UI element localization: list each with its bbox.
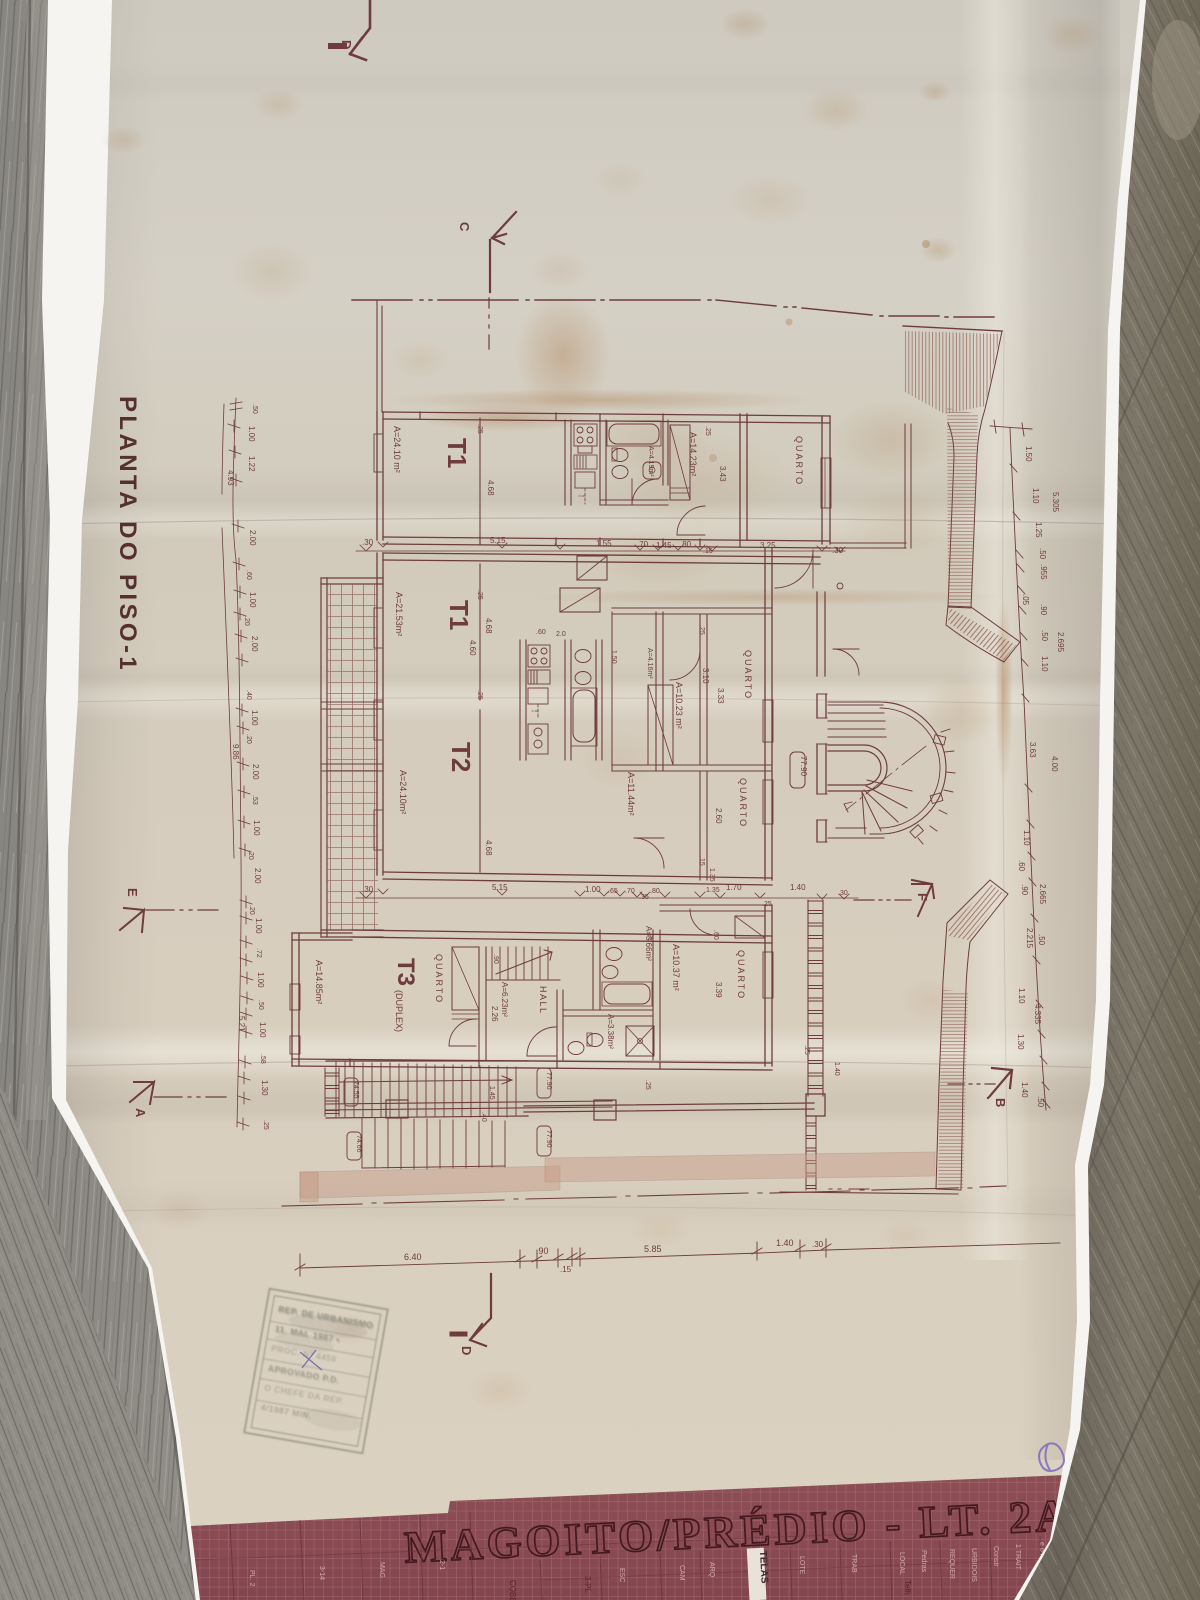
svg-text:.25: .25 bbox=[698, 625, 705, 635]
svg-text:1.40: 1.40 bbox=[833, 1062, 840, 1076]
svg-text:4.68: 4.68 bbox=[484, 618, 493, 634]
svg-text:.20: .20 bbox=[243, 616, 250, 626]
svg-text:QUARTO: QUARTO bbox=[736, 950, 746, 1000]
svg-text:2.0: 2.0 bbox=[556, 631, 566, 638]
svg-text:1.45: 1.45 bbox=[656, 541, 672, 550]
svg-text:ARQ: ARQ bbox=[708, 1562, 715, 1578]
svg-text:Pedras: Pedras bbox=[920, 1550, 927, 1573]
svg-text:74.55: 74.55 bbox=[352, 1081, 359, 1099]
svg-text:1.00: 1.00 bbox=[254, 918, 263, 934]
svg-text:2.215: 2.215 bbox=[1025, 928, 1034, 949]
svg-text:.15: .15 bbox=[560, 1265, 572, 1274]
svg-text:1.00: 1.00 bbox=[256, 972, 265, 988]
svg-text:1.00: 1.00 bbox=[252, 820, 261, 836]
svg-text:3.25: 3.25 bbox=[760, 541, 776, 550]
svg-text:1.00: 1.00 bbox=[247, 426, 256, 442]
svg-text:5.15: 5.15 bbox=[492, 883, 508, 892]
svg-text:.58: .58 bbox=[259, 1054, 266, 1064]
svg-text:TELAS: TELAS bbox=[757, 1550, 770, 1584]
svg-text:74.66: 74.66 bbox=[355, 1135, 362, 1153]
svg-text:4.00: 4.00 bbox=[1050, 756, 1059, 772]
svg-text:.20: .20 bbox=[245, 734, 252, 744]
svg-text:1.45: 1.45 bbox=[488, 1086, 495, 1100]
svg-text:A=10.23 m²: A=10.23 m² bbox=[674, 682, 684, 729]
svg-text:4.68: 4.68 bbox=[484, 840, 493, 856]
svg-text:F: F bbox=[915, 893, 930, 901]
svg-text:HALL: HALL bbox=[538, 986, 548, 1015]
svg-text:4.335: 4.335 bbox=[1033, 1004, 1042, 1025]
svg-text:1.10: 1.10 bbox=[1040, 656, 1049, 672]
svg-text:CAM: CAM bbox=[678, 1565, 685, 1581]
svg-text:.70: .70 bbox=[637, 540, 649, 549]
svg-text:2.26: 2.26 bbox=[490, 1006, 499, 1022]
svg-text:E: E bbox=[125, 888, 140, 897]
svg-text:5.21: 5.21 bbox=[237, 1016, 246, 1032]
svg-text:(DUPLEX): (DUPLEX) bbox=[394, 990, 404, 1032]
svg-text:1.10: 1.10 bbox=[1017, 988, 1026, 1004]
svg-text:1 TRAIT: 1 TRAIT bbox=[1014, 1544, 1021, 1571]
svg-text:QUARTO: QUARTO bbox=[743, 650, 753, 700]
svg-text:.25: .25 bbox=[644, 1080, 651, 1090]
svg-text:QUARTO: QUARTO bbox=[434, 954, 444, 1004]
svg-text:.15: .15 bbox=[698, 856, 705, 866]
svg-text:T1: T1 bbox=[442, 438, 472, 468]
svg-text:Telh: Telh bbox=[903, 1580, 912, 1595]
svg-text:A=6.23m²: A=6.23m² bbox=[500, 982, 509, 1017]
svg-text:1.30: 1.30 bbox=[260, 1080, 269, 1096]
svg-text:77.90: 77.90 bbox=[545, 1130, 552, 1148]
svg-text:QUARTO: QUARTO bbox=[738, 778, 748, 828]
svg-text:.40: .40 bbox=[245, 690, 252, 700]
svg-text:.05: .05 bbox=[1021, 594, 1030, 606]
svg-text:.30: .30 bbox=[362, 885, 374, 894]
svg-text:1.30: 1.30 bbox=[1016, 1034, 1025, 1050]
svg-text:MAG: MAG bbox=[378, 1562, 385, 1578]
svg-text:.20: .20 bbox=[247, 850, 254, 860]
svg-text:.80: .80 bbox=[680, 540, 692, 549]
svg-text:2.665: 2.665 bbox=[1038, 884, 1047, 905]
svg-text:.90: .90 bbox=[1039, 604, 1048, 616]
svg-text:1.00: 1.00 bbox=[258, 1022, 267, 1038]
svg-text:.30: .30 bbox=[838, 890, 848, 897]
svg-text:5.305: 5.305 bbox=[1051, 492, 1060, 513]
svg-text:1.50: 1.50 bbox=[1024, 446, 1033, 462]
svg-text:1.00: 1.00 bbox=[250, 710, 259, 726]
svg-text:T3: T3 bbox=[392, 958, 419, 986]
svg-text:2.60: 2.60 bbox=[714, 808, 723, 824]
svg-text:.50: .50 bbox=[257, 1000, 264, 1010]
svg-text:A=24.10 m²: A=24.10 m² bbox=[392, 426, 402, 473]
svg-text:A=4.16m²: A=4.16m² bbox=[646, 648, 653, 679]
svg-text:1.35: 1.35 bbox=[708, 868, 715, 882]
svg-text:.90: .90 bbox=[492, 954, 499, 964]
svg-text:.90: .90 bbox=[536, 1246, 549, 1256]
svg-text:1.50: 1.50 bbox=[610, 650, 617, 664]
svg-text:3.33: 3.33 bbox=[716, 688, 725, 704]
svg-text:D: D bbox=[339, 40, 354, 49]
svg-text:.35: .35 bbox=[639, 894, 649, 901]
svg-text:C: C bbox=[457, 222, 472, 232]
svg-text:B: B bbox=[993, 1098, 1008, 1107]
svg-text:4.60: 4.60 bbox=[468, 640, 477, 656]
svg-text:.30: .30 bbox=[362, 538, 374, 547]
svg-text:D: D bbox=[459, 1346, 474, 1355]
svg-text:9.86: 9.86 bbox=[231, 744, 240, 760]
svg-text:.25: .25 bbox=[476, 690, 483, 700]
svg-text:77.90: 77.90 bbox=[799, 756, 808, 777]
svg-text:.80: .80 bbox=[650, 888, 660, 895]
svg-text:REQUER: REQUER bbox=[948, 1549, 955, 1579]
svg-text:5.15: 5.15 bbox=[490, 536, 506, 545]
svg-text:URBIDOIS: URBIDOIS bbox=[970, 1548, 977, 1582]
svg-text:TRAB: TRAB bbox=[850, 1554, 857, 1573]
svg-text:3.63: 3.63 bbox=[1028, 742, 1037, 758]
svg-text:.40: .40 bbox=[480, 1112, 487, 1122]
svg-text:2.00: 2.00 bbox=[250, 636, 259, 652]
svg-text:.25: .25 bbox=[262, 1120, 269, 1130]
svg-text:QUARTO: QUARTO bbox=[794, 436, 804, 486]
svg-text:A=3.38m²: A=3.38m² bbox=[606, 1014, 615, 1049]
svg-text:A: A bbox=[133, 1108, 148, 1118]
svg-text:.50: .50 bbox=[251, 404, 258, 414]
svg-text:A=11.44m²: A=11.44m² bbox=[626, 772, 636, 816]
svg-text:.50: .50 bbox=[1036, 1096, 1045, 1108]
svg-text:A=14.85m²: A=14.85m² bbox=[314, 960, 324, 1004]
svg-text:.65: .65 bbox=[608, 888, 618, 895]
svg-text:1.55: 1.55 bbox=[596, 539, 612, 548]
svg-text:.30: .30 bbox=[832, 546, 844, 555]
svg-text:1.00: 1.00 bbox=[585, 885, 601, 894]
svg-text:PLANTA DO PISO-1: PLANTA DO PISO-1 bbox=[114, 396, 141, 673]
svg-text:2.695: 2.695 bbox=[1056, 632, 1065, 653]
svg-text:.15: .15 bbox=[703, 548, 713, 555]
svg-text:.955: .955 bbox=[1039, 564, 1048, 580]
svg-text:1.22: 1.22 bbox=[247, 456, 256, 472]
svg-text:2.00: 2.00 bbox=[253, 868, 262, 884]
svg-text:.95: .95 bbox=[646, 932, 653, 942]
svg-text:2.00: 2.00 bbox=[248, 530, 257, 546]
svg-text:COBER: COBER bbox=[508, 1580, 517, 1600]
svg-text:2-1: 2-1 bbox=[438, 1560, 445, 1570]
svg-text:4.93: 4.93 bbox=[226, 470, 235, 486]
svg-text:.70: .70 bbox=[625, 888, 635, 895]
svg-text:A=10.37 m²: A=10.37 m² bbox=[671, 944, 681, 991]
svg-text:A=4.19m²: A=4.19m² bbox=[647, 446, 654, 477]
svg-text:LOCAL: LOCAL bbox=[898, 1552, 905, 1575]
svg-text:1.35: 1.35 bbox=[706, 887, 720, 894]
svg-text:3-PL: 3-PL bbox=[583, 1576, 592, 1593]
svg-text:.50: .50 bbox=[1037, 934, 1046, 946]
svg-text:T1: T1 bbox=[444, 600, 474, 630]
svg-text:PL. 2: PL. 2 bbox=[248, 1570, 255, 1586]
svg-text:1.40: 1.40 bbox=[1020, 1082, 1029, 1098]
svg-text:1.40: 1.40 bbox=[776, 1238, 794, 1248]
svg-text:.30: .30 bbox=[812, 1240, 824, 1249]
svg-text:LOTE: LOTE bbox=[798, 1556, 805, 1575]
svg-text:.60: .60 bbox=[245, 570, 252, 580]
svg-text:1.70: 1.70 bbox=[726, 883, 742, 892]
svg-text:4.68: 4.68 bbox=[486, 480, 495, 496]
svg-text:1.40: 1.40 bbox=[790, 883, 806, 892]
svg-text:1.10: 1.10 bbox=[1031, 488, 1040, 504]
svg-text:3.39: 3.39 bbox=[714, 982, 723, 998]
svg-text:1.10: 1.10 bbox=[1022, 830, 1031, 846]
svg-text:A=24.10m²: A=24.10m² bbox=[398, 770, 408, 814]
svg-text:1.00: 1.00 bbox=[248, 592, 257, 608]
svg-text:ESC: ESC bbox=[618, 1568, 625, 1582]
svg-text:.20: .20 bbox=[248, 905, 255, 915]
svg-text:A=21.53m²: A=21.53m² bbox=[394, 592, 404, 636]
svg-text:.90: .90 bbox=[1020, 884, 1029, 896]
svg-text:A=14.23m²: A=14.23m² bbox=[688, 432, 698, 476]
svg-text:T2: T2 bbox=[446, 742, 476, 772]
svg-text:.50: .50 bbox=[1040, 630, 1049, 642]
svg-text:5.85: 5.85 bbox=[644, 1244, 662, 1254]
svg-text:.53: .53 bbox=[251, 795, 258, 805]
svg-text:3-14: 3-14 bbox=[318, 1566, 325, 1580]
svg-text:.25: .25 bbox=[704, 426, 711, 436]
svg-text:.60: .60 bbox=[536, 629, 546, 636]
svg-text:1.25: 1.25 bbox=[1034, 522, 1043, 538]
svg-text:77.90: 77.90 bbox=[545, 1072, 552, 1090]
svg-text:.50: .50 bbox=[1038, 548, 1047, 560]
svg-text:Constr: Constr bbox=[992, 1546, 999, 1567]
svg-text:3.43: 3.43 bbox=[718, 466, 727, 482]
svg-text:6.40: 6.40 bbox=[404, 1252, 422, 1262]
svg-text:.60: .60 bbox=[1017, 860, 1026, 872]
svg-text:.72: .72 bbox=[255, 948, 262, 958]
svg-text:3.10: 3.10 bbox=[701, 668, 710, 684]
svg-text:2.00: 2.00 bbox=[251, 764, 260, 780]
